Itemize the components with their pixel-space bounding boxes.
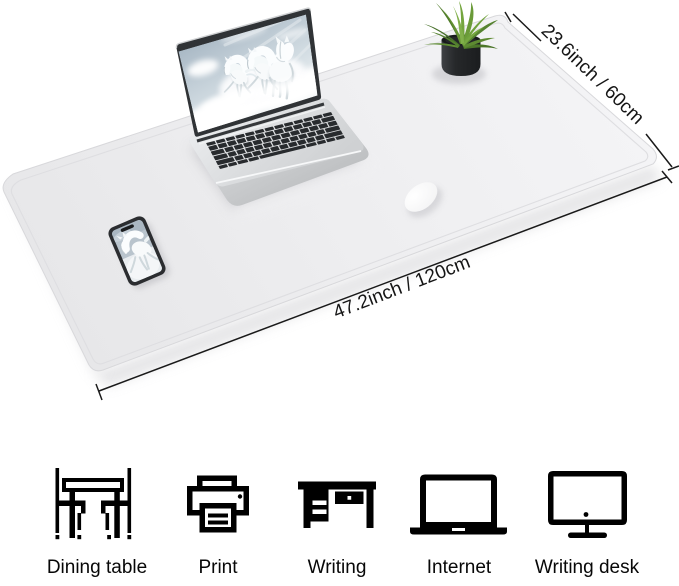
svg-text:Dining table: Dining table: [47, 557, 147, 578]
svg-text:Writing desk: Writing desk: [535, 557, 640, 578]
svg-text:Internet: Internet: [427, 557, 492, 578]
svg-text:Writing: Writing: [308, 557, 367, 578]
svg-text:Print: Print: [198, 557, 238, 578]
